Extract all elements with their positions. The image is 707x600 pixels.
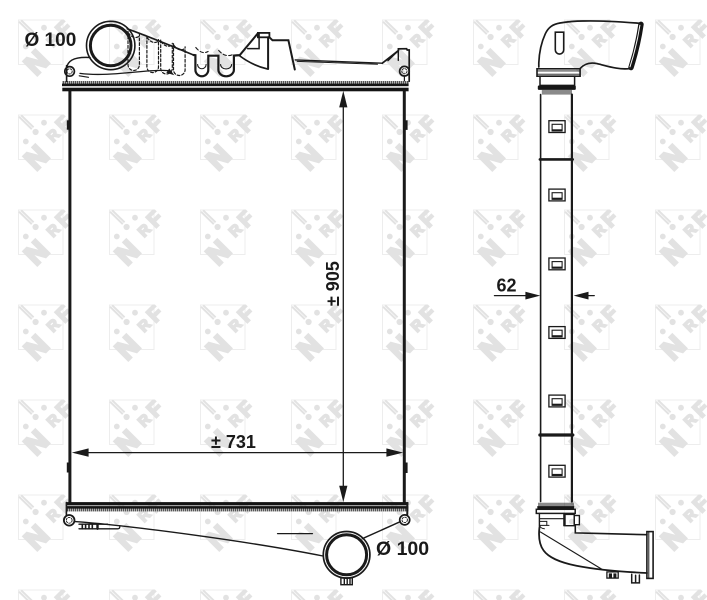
svg-text:Ø 100: Ø 100 (376, 538, 429, 560)
svg-text:Ø 100: Ø 100 (25, 30, 77, 51)
svg-text:± 731: ± 731 (211, 432, 256, 452)
svg-text:± 905: ± 905 (323, 261, 343, 306)
svg-text:62: 62 (497, 276, 517, 296)
